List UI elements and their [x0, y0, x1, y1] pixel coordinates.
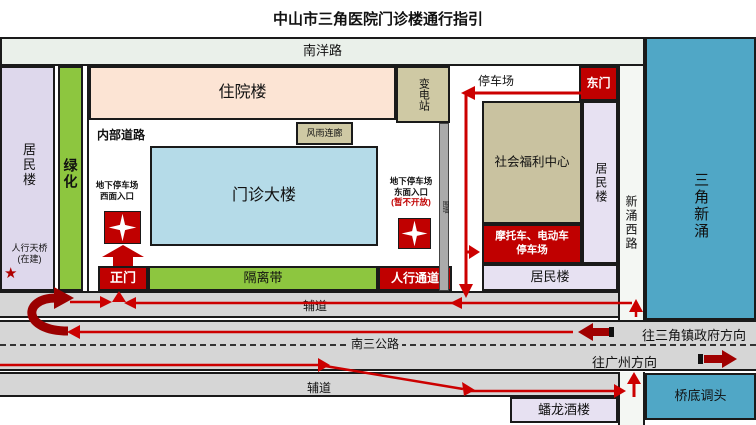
service-road-south: 辅道: [0, 372, 618, 397]
footbridge-note: 人行天桥 (在建): [4, 243, 55, 265]
wall-strip: 围墙: [439, 123, 449, 291]
internal-road-label: 内部道路: [97, 126, 145, 143]
outpatient-label: 门诊大楼: [232, 187, 296, 205]
xinchong-west-label: 新涌西路: [623, 195, 640, 251]
bridge-uturn-label: 桥底调头: [674, 389, 726, 404]
main-gate-label: 正门: [110, 271, 136, 286]
inpatient-label: 住院楼: [218, 84, 266, 102]
east-gate: 东门: [579, 66, 618, 101]
river-label: 三角新涌: [692, 172, 709, 240]
main-road: 往三角镇政府方向 南三公路 往广州方向: [0, 320, 756, 371]
page-title: 中山市三角医院门诊楼通行指引: [0, 8, 756, 29]
building-inpatient: 住院楼: [89, 66, 396, 120]
welfare-center-label: 社会福利中心: [494, 155, 569, 169]
building-outpatient: 门诊大楼: [150, 146, 378, 246]
greenbelt-label: 绿化: [62, 158, 78, 190]
hospital-traffic-guide-map: 中山市三角医院门诊楼通行指引 南洋路 三角新涌 居民楼 人行天桥 (在建) ★ …: [0, 0, 756, 425]
parking-lot-label: 停车场: [478, 72, 514, 89]
building-panlong-restaurant: 蟠龙酒楼: [510, 397, 618, 423]
road-xinchong-west: 新涌西路: [618, 66, 645, 320]
arrowhead-left-parking: [461, 86, 475, 100]
to-sanjiao-gov-label: 往三角镇政府方向: [642, 325, 746, 344]
west-parking-entrance-icon: [104, 211, 141, 244]
service-road-north-label: 辅道: [303, 297, 327, 314]
resident-right-label: 居民楼: [593, 162, 607, 204]
service-road-south-label: 辅道: [307, 379, 331, 396]
east-parking-entrance-icon: [398, 218, 431, 249]
east-entrance-line3: (暂不开放): [391, 197, 431, 207]
pedestrian-passage-label: 人行通道: [391, 272, 439, 286]
east-entrance-line1: 地下停车场: [390, 176, 433, 186]
main-gate: 正门: [98, 266, 148, 291]
road-nanyang: 南洋路: [0, 37, 645, 66]
building-substation: 变电站: [396, 66, 450, 123]
moto-parking-line1: 摩托车、电动车: [495, 230, 569, 242]
moto-parking-line2: 停车场: [516, 244, 548, 256]
greenbelt-strip: 绿化: [58, 66, 83, 291]
panlong-label: 蟠龙酒楼: [538, 403, 590, 418]
resident-bottom-label: 居民楼: [530, 270, 569, 285]
east-gate-label: 东门: [586, 77, 610, 91]
to-guangzhou-label: 往广州方向: [592, 352, 657, 371]
road-nanyang-label: 南洋路: [303, 44, 342, 59]
east-entrance-line2: 东面入口: [394, 187, 428, 197]
service-road-north: 辅道: [0, 291, 618, 318]
separation-belt-label: 隔离带: [243, 271, 282, 286]
west-entrance-line1: 地下停车场: [96, 180, 139, 190]
covered-corridor-label: 风雨连廊: [306, 128, 342, 138]
main-gate-entry-up-arrow: [102, 245, 144, 266]
footbridge-line2: (在建): [18, 254, 42, 264]
road-xinchong-west-south: [618, 372, 645, 425]
motorcycle-parking: 摩托车、电动车 停车场: [482, 224, 582, 264]
substation-label: 变电站: [417, 78, 430, 111]
building-resident-bottom: 居民楼: [482, 264, 618, 291]
footbridge-line1: 人行天桥: [11, 243, 47, 253]
west-entrance-line2: 西面入口: [100, 191, 134, 201]
motorcycle-parking-label: 摩托车、电动车 停车场: [495, 230, 569, 257]
building-resident-right: 居民楼: [582, 101, 618, 264]
arrowhead-right-moto: [469, 245, 480, 259]
resident-left-label: 居民楼: [20, 143, 35, 188]
east-entrance-note: 地下停车场 东面入口 (暂不开放): [382, 176, 440, 208]
building-resident-left: 居民楼 人行天桥 (在建) ★: [0, 66, 55, 291]
footbridge-star-icon: ★: [4, 265, 17, 282]
covered-corridor: 风雨连廊: [296, 122, 353, 145]
main-road-label: 南三公路: [348, 335, 402, 352]
separation-belt: 隔离带: [148, 266, 378, 291]
star-sparkle-icon: [105, 212, 140, 243]
building-welfare-center: 社会福利中心: [482, 101, 582, 224]
west-entrance-note: 地下停车场 西面入口: [88, 180, 146, 201]
river-sanjiao-xinchong: 三角新涌: [645, 37, 756, 320]
wall-label: 围墙: [439, 201, 449, 214]
bridge-uturn-area: 桥底调头: [645, 373, 756, 420]
star-sparkle-icon: [399, 219, 430, 248]
